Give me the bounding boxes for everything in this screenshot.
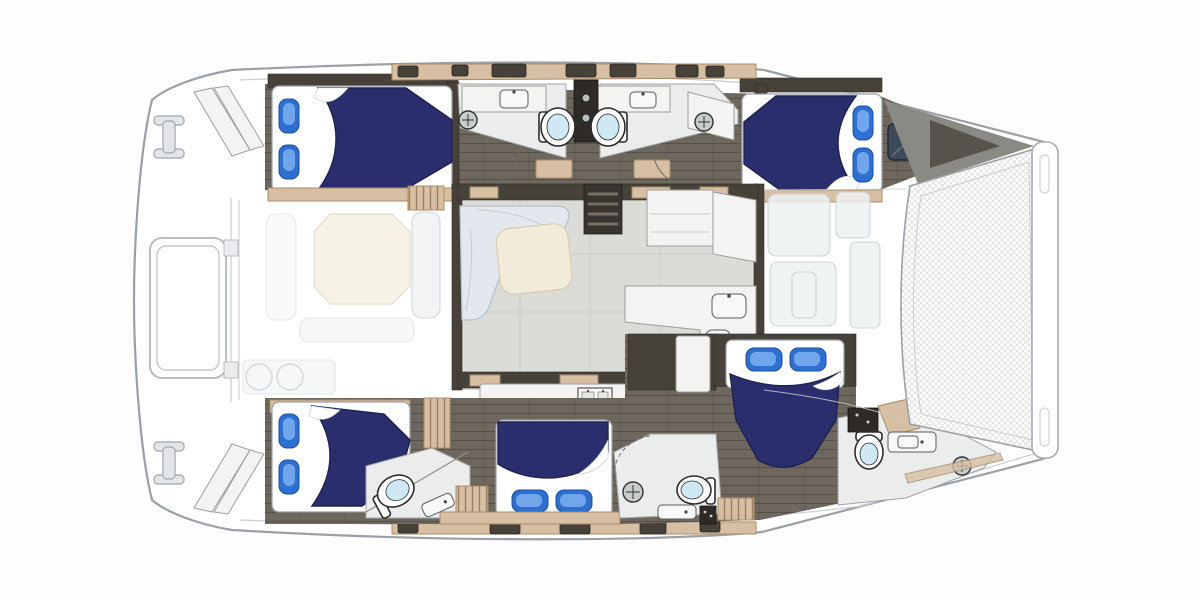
deck-hatch bbox=[492, 64, 526, 77]
deck-hatch-band-top bbox=[392, 64, 756, 80]
port-fwd-cabin bbox=[742, 94, 882, 192]
faucet-dot bbox=[684, 510, 687, 513]
stbd-fwd-cabin-door bbox=[676, 336, 710, 392]
pillow-highlight bbox=[283, 149, 295, 171]
pillow-highlight bbox=[283, 418, 295, 440]
foredeck-seat-back bbox=[792, 272, 816, 318]
foredeck-seat bbox=[850, 242, 880, 328]
pillow-highlight bbox=[857, 110, 869, 132]
wall-hatch bbox=[470, 187, 498, 198]
fridge-unit bbox=[647, 190, 713, 246]
deck-hatch bbox=[566, 64, 596, 77]
sink-icon bbox=[658, 505, 696, 519]
pillow-highlight bbox=[794, 352, 820, 366]
locker-dark bbox=[848, 408, 878, 432]
slatted-locker bbox=[718, 498, 754, 520]
deck-hatch bbox=[676, 65, 698, 77]
stbd-mid-bed-trim bbox=[440, 512, 620, 524]
toilet-icon bbox=[591, 108, 627, 146]
faucet-dot bbox=[920, 440, 923, 443]
locker-dark bbox=[700, 506, 716, 524]
cockpit-bench-bottom bbox=[300, 318, 414, 342]
pillow-highlight bbox=[516, 494, 542, 507]
galley-counter-fwd bbox=[713, 192, 756, 262]
pillow-highlight bbox=[283, 464, 295, 486]
corridor-hatch bbox=[536, 160, 572, 178]
deck-hatch bbox=[640, 522, 666, 534]
faucet-dot bbox=[727, 294, 731, 298]
deck-hatch bbox=[452, 65, 468, 76]
toilet-icon bbox=[539, 108, 575, 146]
cockpit-side-seat bbox=[266, 214, 296, 320]
deck-hatch bbox=[610, 64, 636, 77]
cockpit-bench-right bbox=[412, 212, 440, 318]
bowsprit-crossbeam bbox=[1032, 142, 1058, 458]
toilet-icon bbox=[855, 432, 883, 469]
sink-icon bbox=[898, 436, 918, 448]
trampoline-mesh bbox=[901, 148, 1042, 452]
stairs-to-port-hull bbox=[584, 184, 622, 234]
salon-table bbox=[495, 222, 574, 295]
deck-hatch bbox=[706, 66, 724, 77]
locker-dot bbox=[867, 421, 870, 424]
faucet-dot bbox=[641, 92, 644, 95]
faucet-dot bbox=[512, 90, 515, 93]
locker-dot bbox=[710, 515, 713, 518]
stbd-mid-head bbox=[614, 434, 722, 524]
floor-plan-canvas bbox=[0, 0, 1200, 600]
pillow-highlight bbox=[750, 352, 776, 366]
catamaran-floor-plan bbox=[0, 0, 1200, 600]
slatted-locker bbox=[456, 486, 488, 514]
slatted-locker bbox=[424, 398, 450, 448]
bow-trampoline bbox=[901, 142, 1058, 458]
foredeck-seat bbox=[768, 194, 830, 256]
foredeck-seat bbox=[836, 192, 870, 238]
grill-cabinet-ghost bbox=[243, 360, 335, 394]
toilet-icon bbox=[677, 476, 715, 504]
pillow-highlight bbox=[560, 494, 586, 507]
shower-control bbox=[582, 114, 590, 122]
locker-dot bbox=[704, 511, 707, 514]
shower-control bbox=[582, 94, 590, 102]
port-aft-cabin bbox=[272, 86, 452, 192]
deck-hatch bbox=[398, 66, 418, 77]
port-locker-slatted bbox=[408, 186, 444, 210]
pillow-highlight bbox=[857, 152, 869, 174]
locker-dot bbox=[856, 414, 859, 417]
pillow-highlight bbox=[283, 103, 295, 125]
cockpit-table-ghost bbox=[314, 214, 410, 304]
